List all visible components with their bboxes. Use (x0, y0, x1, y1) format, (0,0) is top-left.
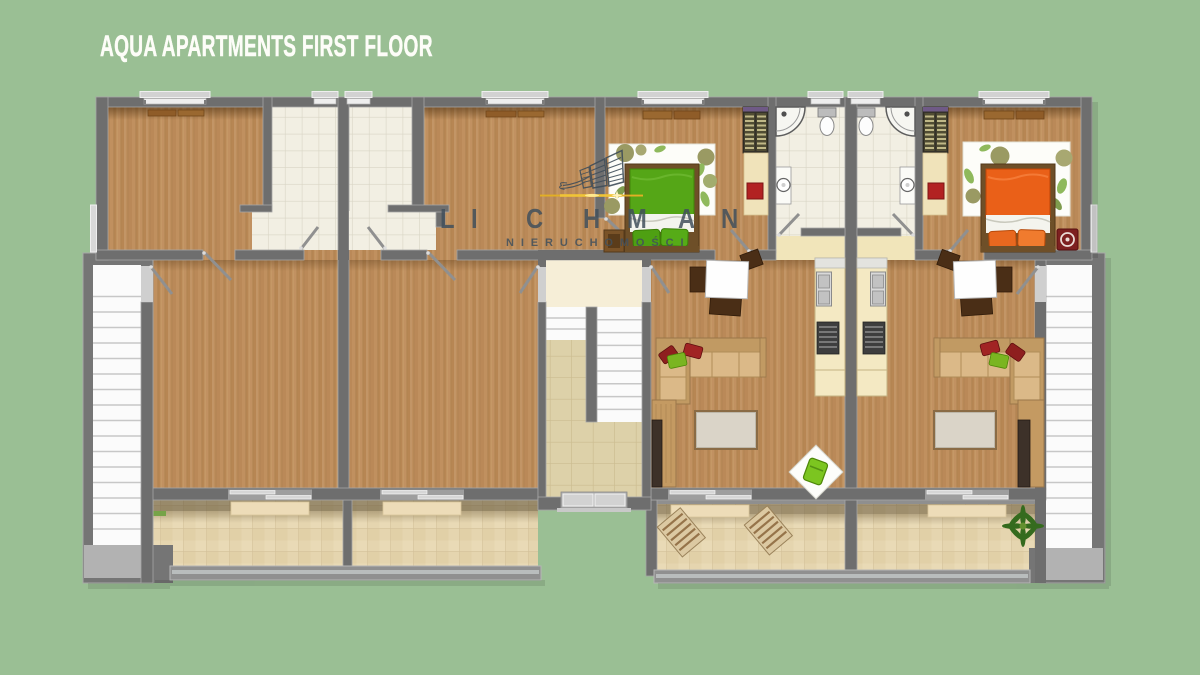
svg-text:N: N (721, 202, 738, 234)
svg-text:L: L (440, 202, 455, 234)
svg-text:I: I (471, 202, 478, 234)
svg-text:AQUA APARTMENTS FIRST FLOOR: AQUA APARTMENTS FIRST FLOOR (100, 31, 433, 63)
svg-text:NIERUCHOMOŚCI: NIERUCHOMOŚCI (506, 236, 690, 249)
svg-text:H: H (583, 202, 600, 234)
svg-text:A: A (678, 202, 695, 234)
svg-text:M: M (627, 202, 647, 234)
svg-text:C: C (526, 202, 543, 234)
